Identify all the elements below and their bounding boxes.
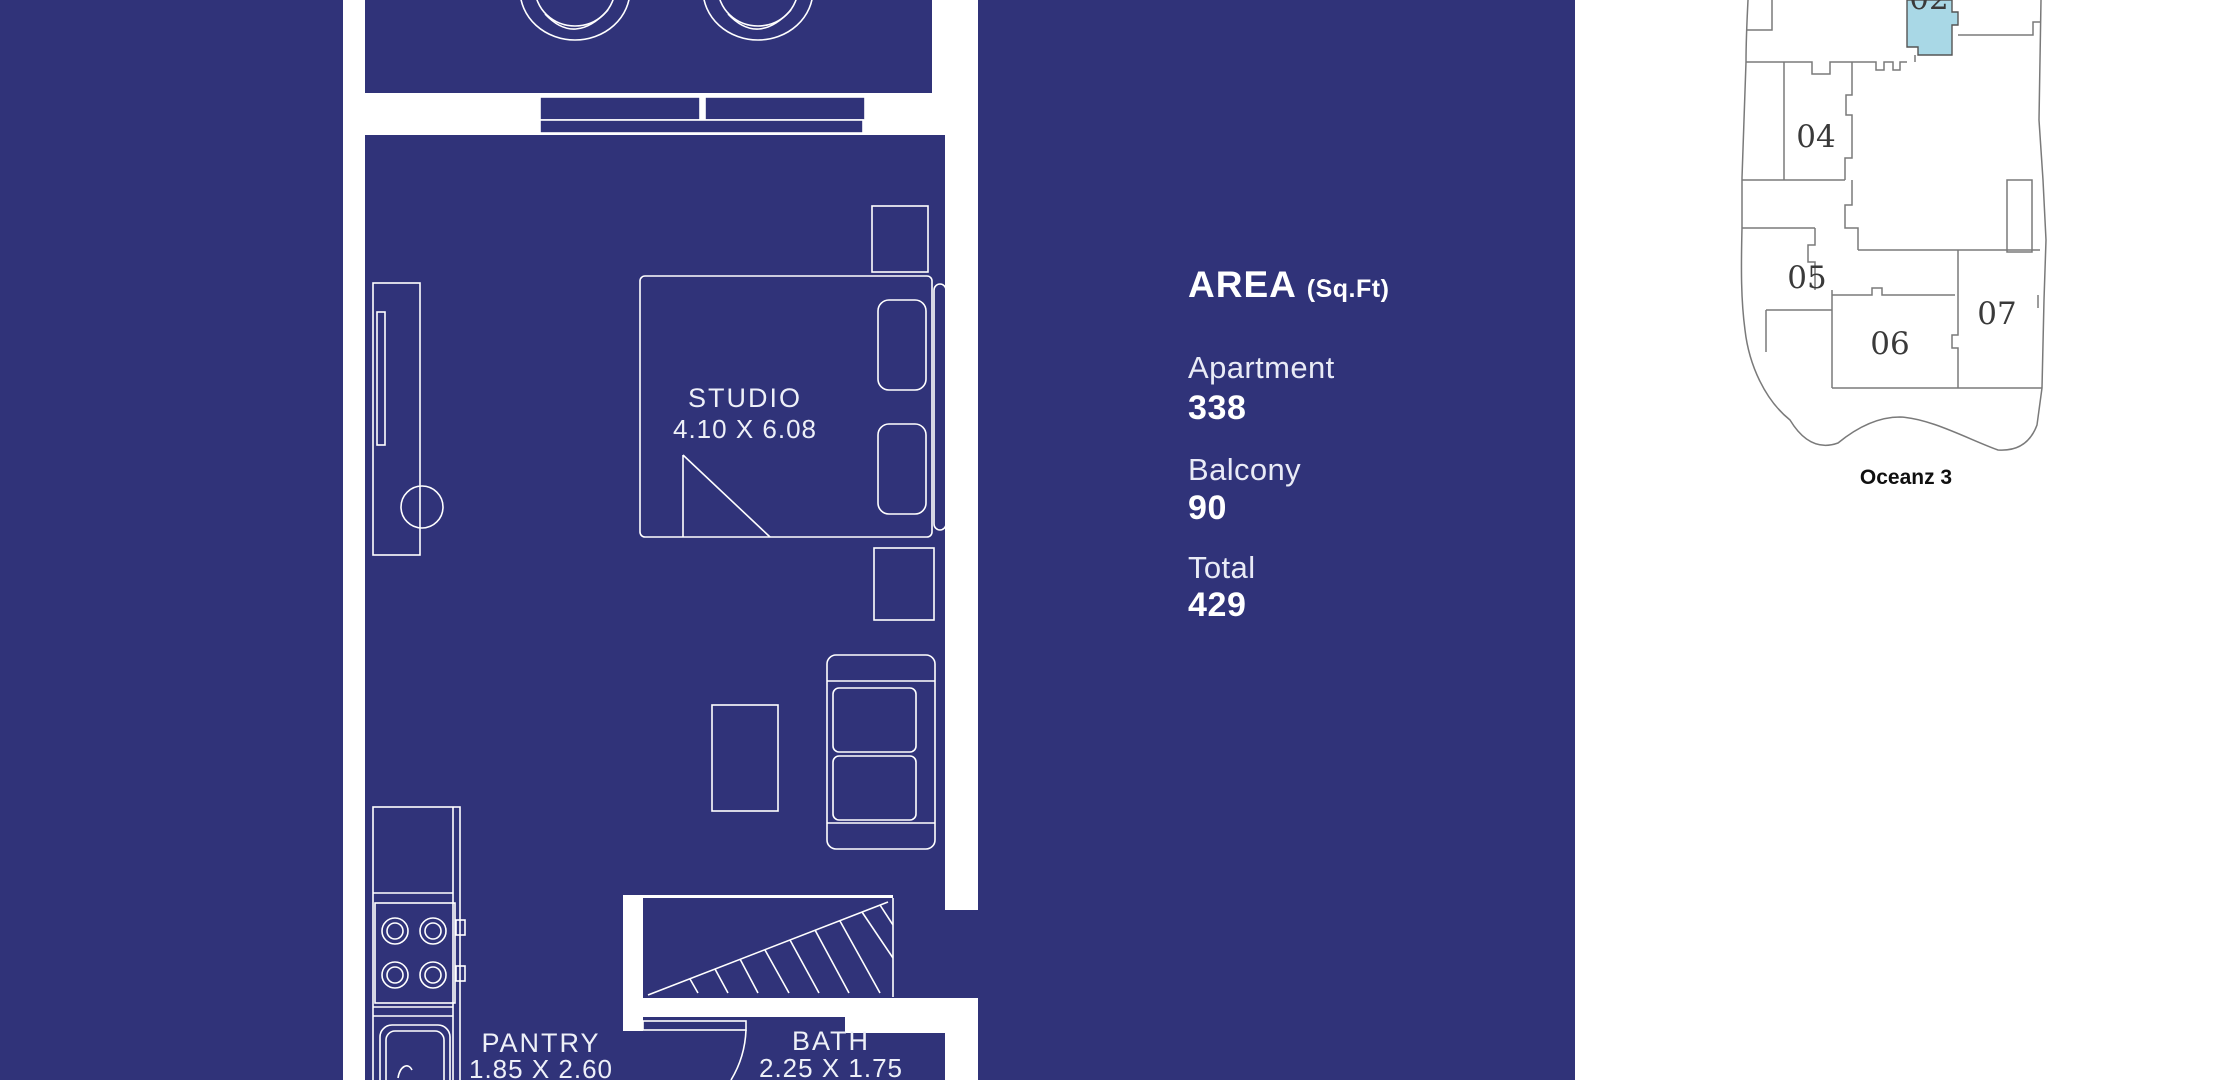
bath-dimensions: 2.25 X 1.75	[759, 1053, 903, 1080]
area-title-text: AREA	[1188, 264, 1295, 305]
pantry-dimensions: 1.85 X 2.60	[469, 1054, 613, 1080]
key-plan: 02 04 05 06 07 Oceanz 3	[1735, 0, 2055, 500]
total-label: Total	[1188, 550, 1255, 586]
studio-dimensions: 4.10 X 6.08	[673, 414, 817, 444]
apartment-label: Apartment	[1188, 350, 1335, 386]
total-value: 429	[1188, 586, 1247, 625]
unit-07-label: 07	[1977, 296, 2016, 332]
bath-label: BATH	[792, 1026, 870, 1056]
area-panel: AREA (Sq.Ft) Apartment 338 Balcony 90 To…	[1188, 0, 1588, 1080]
building-name-label: Oceanz 3	[1860, 466, 1952, 489]
area-title: AREA (Sq.Ft)	[1188, 264, 1389, 306]
unit-06-label: 06	[1870, 326, 1909, 362]
apartment-value: 338	[1188, 389, 1247, 428]
studio-label: STUDIO	[688, 383, 802, 413]
area-title-unit: (Sq.Ft)	[1307, 275, 1390, 303]
unit-04-label: 04	[1796, 119, 1835, 155]
floor-plan-page: STUDIO 4.10 X 6.08 PANTRY 1.85 X 2.60 BA…	[0, 0, 2220, 1080]
unit-02-label: 02	[1909, 0, 1948, 17]
balcony-label: Balcony	[1188, 452, 1301, 488]
balcony-value: 90	[1188, 489, 1227, 528]
unit-05-label: 05	[1787, 260, 1826, 296]
bath-niche	[903, 910, 978, 998]
building-outline	[1741, 0, 2046, 450]
